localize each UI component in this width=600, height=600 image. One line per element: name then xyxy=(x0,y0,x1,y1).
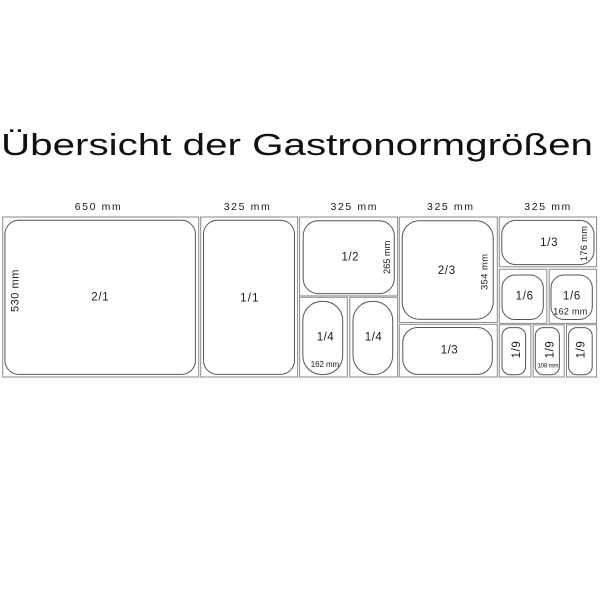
svg-text:650 mm: 650 mm xyxy=(75,201,121,213)
svg-text:1/1: 1/1 xyxy=(240,292,258,304)
svg-text:354 mm: 354 mm xyxy=(480,254,490,290)
svg-text:Übersicht der Gastronormgrößen: Übersicht der Gastronormgrößen xyxy=(1,127,593,162)
svg-text:325 mm: 325 mm xyxy=(524,201,570,213)
svg-text:1/3: 1/3 xyxy=(540,237,557,249)
svg-text:2/1: 2/1 xyxy=(91,292,108,304)
svg-text:325 mm: 325 mm xyxy=(427,201,473,213)
svg-text:2/3: 2/3 xyxy=(438,265,455,277)
svg-text:1/9: 1/9 xyxy=(544,341,556,358)
svg-text:1/4: 1/4 xyxy=(317,332,335,344)
svg-text:1/4: 1/4 xyxy=(365,332,383,344)
svg-text:1/9: 1/9 xyxy=(511,341,523,358)
svg-text:162 mm: 162 mm xyxy=(553,307,587,317)
svg-text:108 mm: 108 mm xyxy=(538,363,559,370)
svg-text:265 mm: 265 mm xyxy=(382,240,392,274)
svg-text:162 mm: 162 mm xyxy=(311,360,340,369)
svg-text:325 mm: 325 mm xyxy=(331,201,377,213)
svg-text:176 mm: 176 mm xyxy=(579,226,589,261)
svg-text:530 mm: 530 mm xyxy=(10,270,22,313)
svg-text:325 mm: 325 mm xyxy=(224,201,270,213)
svg-text:1/6: 1/6 xyxy=(563,291,580,303)
svg-text:1/3: 1/3 xyxy=(441,345,458,357)
svg-text:1/6: 1/6 xyxy=(516,291,533,303)
svg-text:1/2: 1/2 xyxy=(342,252,359,264)
svg-text:1/9: 1/9 xyxy=(576,341,588,358)
